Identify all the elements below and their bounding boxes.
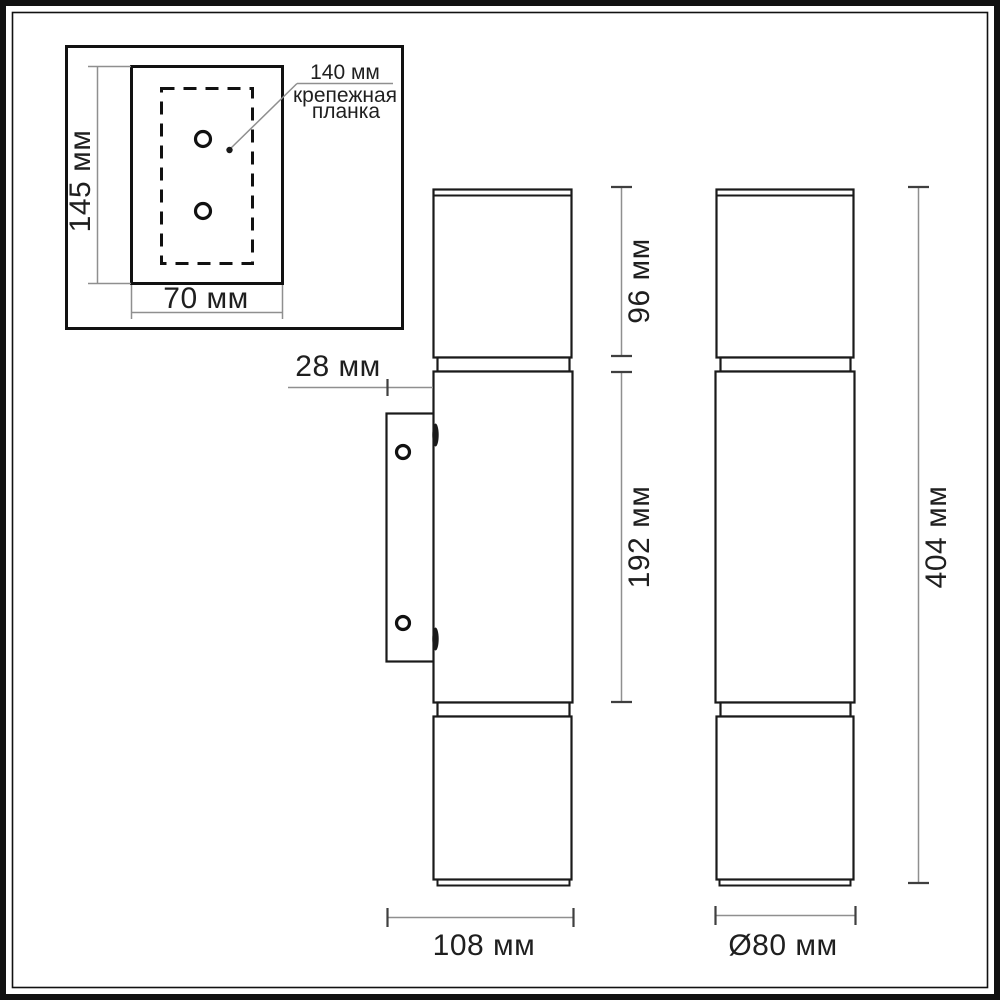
front-main-body — [716, 372, 855, 703]
total-height-dimension: 404 мм — [908, 187, 953, 883]
mounting-plate-inset: 145 мм 70 мм 140 мм крепежная планка — [64, 47, 403, 329]
side-screw-hole-top — [397, 446, 410, 459]
diameter-label: Ø80 мм — [728, 929, 837, 962]
diameter-dimension: Ø80 мм — [715, 906, 856, 962]
front-bottom-cap — [720, 880, 851, 886]
lamp-front-view — [716, 190, 855, 886]
technical-drawing: 145 мм 70 мм 140 мм крепежная планка — [0, 0, 1000, 1000]
lamp-side-view — [387, 190, 573, 886]
bracket-arm-bottom — [432, 628, 438, 651]
top-section-dimension: 96 мм — [611, 187, 656, 356]
front-upper-band — [721, 358, 851, 372]
side-upper-band — [438, 358, 570, 372]
depth-label: 108 мм — [433, 929, 536, 962]
drawing-page: 145 мм 70 мм 140 мм крепежная планка — [0, 0, 1000, 1000]
callout-value: 140 мм — [310, 61, 380, 84]
plate-screw-hole-top — [196, 132, 211, 147]
inset-height-label: 145 мм — [64, 130, 97, 233]
middle-section-dimension: 192 мм — [611, 372, 656, 702]
side-bottom-section — [434, 717, 572, 880]
front-top-section — [717, 190, 854, 358]
callout-anchor-dot — [226, 147, 232, 153]
plate-screw-hole-bottom — [196, 204, 211, 219]
plate-outline — [132, 67, 283, 284]
front-bottom-section — [717, 717, 854, 880]
side-screw-hole-bottom — [397, 617, 410, 630]
inset-width-label: 70 мм — [163, 282, 248, 315]
front-lower-band — [721, 703, 851, 717]
wall-offset-label: 28 мм — [295, 350, 380, 383]
side-bottom-cap — [438, 880, 570, 886]
side-main-body — [434, 372, 573, 703]
top-section-label: 96 мм — [623, 238, 656, 323]
bracket-arm-top — [432, 424, 438, 447]
total-height-label: 404 мм — [920, 486, 953, 589]
callout-text-line2: планка — [312, 100, 381, 123]
side-lower-band — [438, 703, 570, 717]
middle-section-label: 192 мм — [623, 486, 656, 589]
side-top-section — [434, 190, 572, 358]
wall-offset-dimension: 28 мм — [288, 350, 433, 396]
depth-dimension: 108 мм — [387, 908, 574, 962]
